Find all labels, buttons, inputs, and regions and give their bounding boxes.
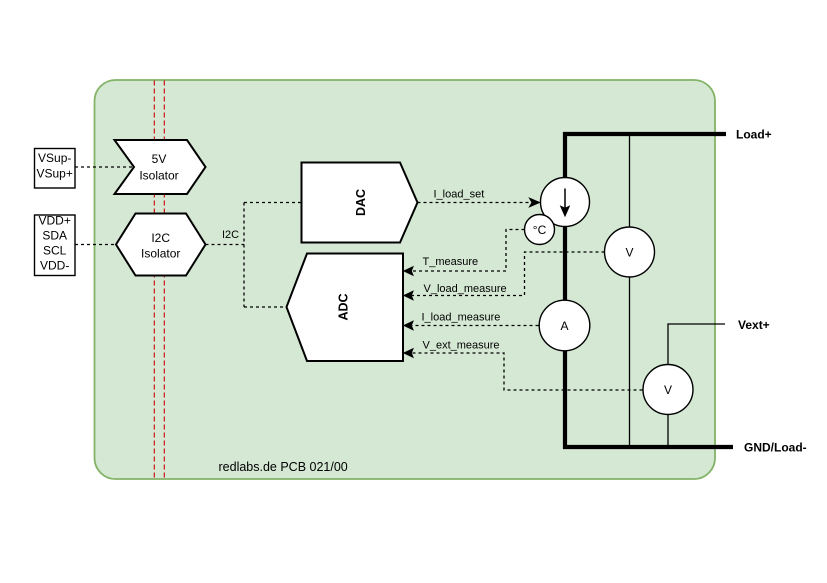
svg-text:Vext+: Vext+ <box>738 318 770 332</box>
svg-text:I_load_measure: I_load_measure <box>422 312 501 324</box>
svg-text:T_measure: T_measure <box>423 256 479 268</box>
svg-text:I2C: I2C <box>222 229 239 241</box>
svg-text:V_ext_measure: V_ext_measure <box>423 339 500 351</box>
svg-text:DAC: DAC <box>354 189 368 216</box>
svg-text:ADC: ADC <box>337 293 351 320</box>
svg-text:V: V <box>664 383 672 397</box>
svg-text:°C: °C <box>533 223 547 237</box>
svg-text:V_load_measure: V_load_measure <box>424 283 507 295</box>
svg-text:VDD-: VDD- <box>40 259 69 273</box>
svg-text:V: V <box>625 246 633 260</box>
svg-text:A: A <box>560 319 568 333</box>
svg-text:Isolator: Isolator <box>141 247 180 261</box>
svg-text:SDA: SDA <box>42 229 67 243</box>
svg-text:Isolator: Isolator <box>139 169 178 183</box>
svg-text:VDD+: VDD+ <box>39 214 71 228</box>
svg-text:5V: 5V <box>152 152 167 166</box>
svg-text:redlabs.de PCB 021/00: redlabs.de PCB 021/00 <box>219 460 348 474</box>
svg-text:GND/Load-: GND/Load- <box>744 441 807 455</box>
svg-text:I2C: I2C <box>151 231 170 245</box>
svg-text:I_load_set: I_load_set <box>434 189 485 201</box>
svg-text:VSup-: VSup- <box>38 151 71 165</box>
svg-text:Load+: Load+ <box>736 128 772 142</box>
svg-text:VSup+: VSup+ <box>37 167 73 181</box>
svg-text:SCL: SCL <box>43 244 67 258</box>
